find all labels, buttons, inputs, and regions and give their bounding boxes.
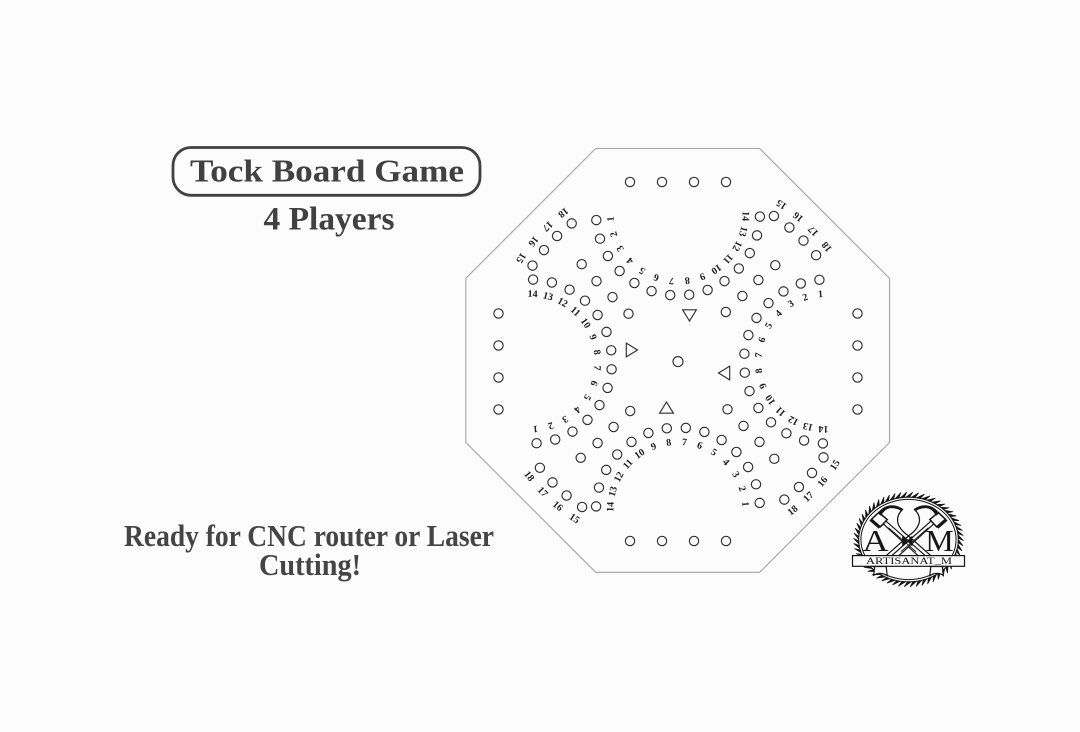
svg-text:7: 7 [754, 352, 765, 358]
svg-text:1: 1 [739, 501, 750, 507]
svg-text:7: 7 [669, 274, 675, 285]
svg-text:14: 14 [527, 289, 537, 300]
svg-text:1: 1 [532, 423, 538, 434]
svg-text:M: M [925, 523, 954, 558]
svg-text:ARTISANAT_M: ARTISANAT_M [866, 557, 953, 567]
svg-text:1: 1 [818, 289, 824, 300]
svg-text:A: A [863, 523, 890, 558]
svg-text:7: 7 [591, 365, 602, 371]
svg-text:14: 14 [818, 423, 828, 434]
svg-text:Cutting!: Cutting! [259, 547, 361, 582]
svg-text:Tock Board Game: Tock Board Game [190, 153, 464, 189]
svg-text:14: 14 [739, 211, 750, 221]
svg-text:4 Players: 4 Players [264, 201, 395, 237]
svg-text:7: 7 [681, 437, 687, 448]
svg-text:14: 14 [605, 502, 616, 512]
svg-text:1: 1 [606, 216, 617, 222]
